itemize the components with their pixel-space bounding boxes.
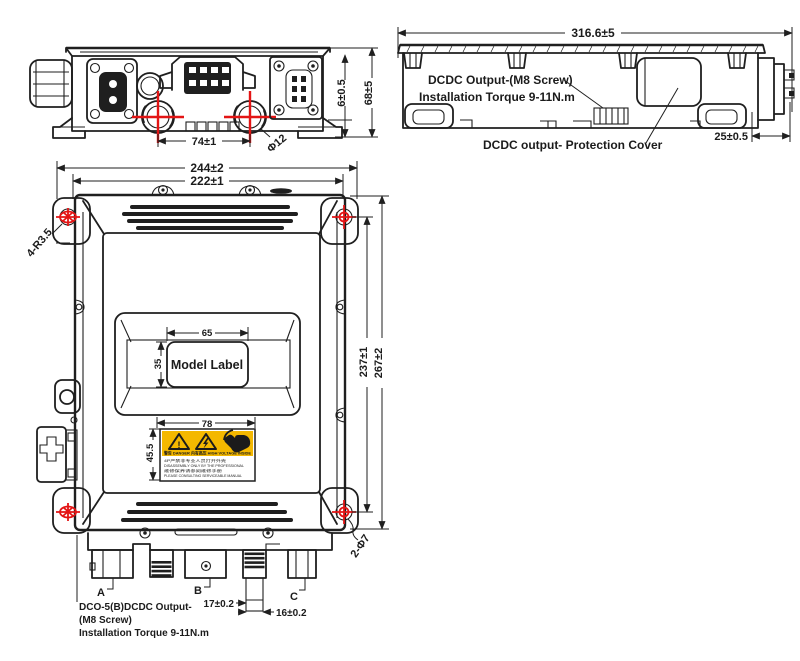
vents-top bbox=[122, 205, 298, 230]
dim-heights: 6±0.5 68±5 bbox=[327, 48, 378, 137]
dim-hole-pitch: 237±1 bbox=[352, 217, 373, 512]
dim-corner-radius-text: 4-R3.5 bbox=[24, 227, 54, 260]
hole-marker bbox=[56, 208, 80, 226]
left-side-connector bbox=[37, 427, 77, 482]
dim-port-diameter: Φ12 bbox=[261, 129, 289, 155]
dim-hole-pitch-text: 237±1 bbox=[358, 347, 370, 378]
connector-a-label: A bbox=[97, 587, 105, 599]
protection-cover bbox=[637, 58, 701, 106]
dco-line2: (M8 Screw) bbox=[79, 615, 132, 626]
dim-tube-offset-text: 17±0.2 bbox=[203, 599, 234, 610]
dim-port-pitch-text: 74±1 bbox=[192, 136, 216, 148]
right-connector bbox=[270, 57, 322, 119]
dim-length-text: 316.6±5 bbox=[571, 26, 615, 40]
top-view: 244±2 222±1 bbox=[24, 161, 389, 639]
dim-model-width-text: 65 bbox=[202, 328, 213, 339]
dim-tube-offset: 17±0.2 bbox=[203, 599, 246, 610]
signal-connector bbox=[160, 57, 255, 94]
model-label-panel: Model Label 65 35 bbox=[115, 313, 300, 415]
side-view: 316.6±5 bbox=[398, 26, 794, 152]
connector-b: B bbox=[185, 550, 226, 597]
dcdc-dimension-drawing: 74±1 Φ12 6±0.5 68±5 316.6±5 bbox=[0, 0, 800, 661]
hv-connector-left bbox=[30, 60, 72, 107]
dim-mount-holes: 2-Φ7 bbox=[348, 519, 373, 560]
dim-connector-depth-text: 25±0.5 bbox=[714, 131, 748, 143]
warning-band-text: 警告 DANGER 内有高压 HIGH VOLTAGE INSIDE bbox=[163, 451, 252, 456]
front-view: 74±1 Φ12 6±0.5 68±5 bbox=[30, 48, 378, 155]
output-label-line2: Installation Torque 9-11N.m bbox=[419, 90, 575, 104]
ribbed-connector-1 bbox=[150, 550, 173, 577]
technical-drawing-page: 74±1 Φ12 6±0.5 68±5 316.6±5 bbox=[0, 0, 800, 661]
warning-line2: DISASSEMBLY ONLY BY THE PROFESSIONAL bbox=[164, 464, 244, 468]
dim-port-pitch: 74±1 bbox=[158, 134, 250, 148]
hole-marker bbox=[56, 503, 80, 521]
dim-total-height-text: 68±5 bbox=[363, 81, 375, 105]
connector-c: C bbox=[288, 550, 316, 603]
svg-text:!: ! bbox=[178, 440, 181, 450]
model-label-text: Model Label bbox=[171, 358, 243, 372]
dim-corner-radius: 4-R3.5 bbox=[24, 224, 70, 260]
side-labels: DCDC Output-(M8 Screw) Installation Torq… bbox=[419, 73, 678, 152]
dco-line3: Installation Torque 9-11N.m bbox=[79, 628, 209, 639]
connector-b-label: B bbox=[194, 585, 202, 597]
warning-line4: PLEASE CONSULTING SERVICEABLE MANUAL bbox=[164, 474, 242, 478]
connector-c-label: C bbox=[290, 591, 298, 603]
ribbed-connector-2-tube bbox=[243, 550, 266, 611]
warning-line3: 维修保养请参阅维修手册 bbox=[164, 468, 223, 473]
connector-a: A bbox=[90, 550, 133, 599]
dim-connector-depth: 25±0.5 bbox=[714, 102, 790, 143]
dim-outer-width-text: 244±2 bbox=[190, 161, 224, 175]
warning-label: 78 45.5 ! 警告 DAN bbox=[145, 417, 255, 481]
cover-label: DCDC output- Protection Cover bbox=[483, 138, 663, 152]
dim-tube-width: 16±0.2 bbox=[238, 608, 307, 619]
dim-inner-width-text: 222±1 bbox=[190, 174, 224, 188]
m8-output-block bbox=[594, 108, 628, 124]
dim-outer-height-text: 267±2 bbox=[373, 348, 385, 379]
dim-warn-height-text: 45.5 bbox=[145, 443, 156, 462]
dim-model-height-text: 35 bbox=[153, 358, 164, 369]
dim-lid-height-text: 6±0.5 bbox=[336, 79, 348, 106]
warning-line1: 4P严禁非专业人员打开外壳 bbox=[164, 458, 227, 463]
output-label-line1: DCDC Output-(M8 Screw) bbox=[428, 73, 573, 87]
vents-bottom bbox=[121, 502, 293, 522]
dim-mount-holes-text: 2-Φ7 bbox=[348, 533, 372, 560]
side-right-connector bbox=[758, 58, 794, 120]
two-pin-connector bbox=[87, 59, 137, 123]
front-vent-slots bbox=[186, 122, 239, 131]
dim-tube-width-text: 16±0.2 bbox=[276, 608, 307, 619]
left-bracket bbox=[55, 380, 80, 413]
dco-line1: DCO-5(B)DCDC Output- bbox=[79, 602, 192, 613]
